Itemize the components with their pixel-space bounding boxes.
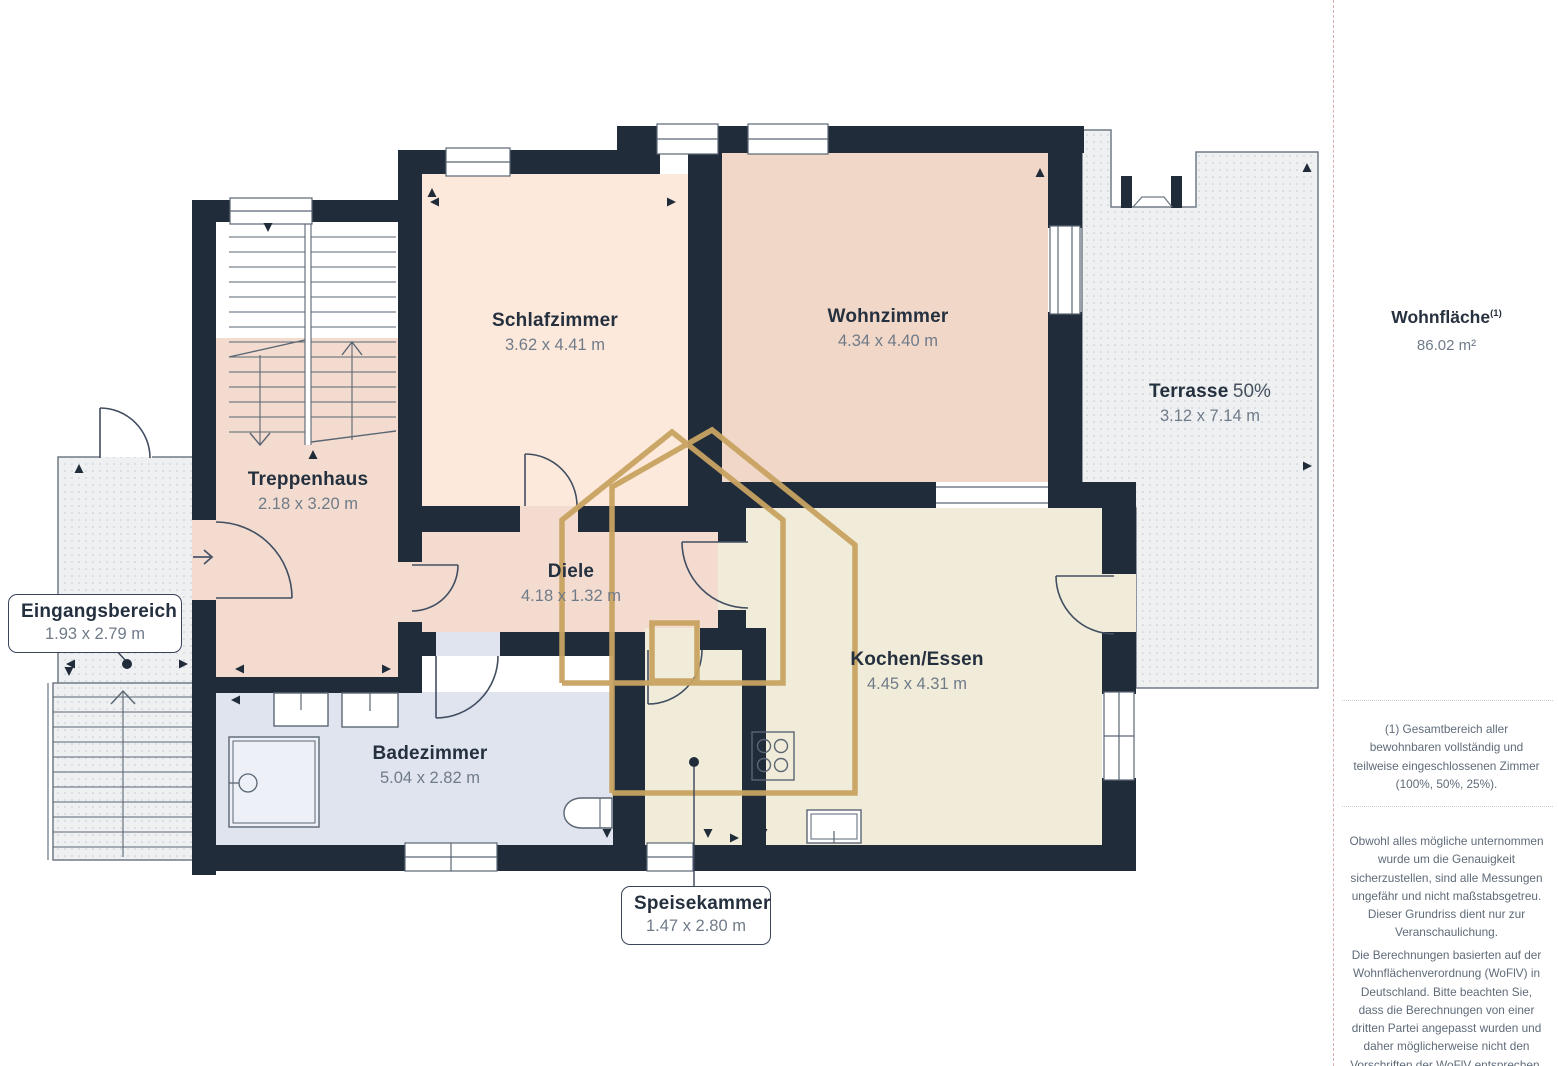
shower [229,737,319,827]
wall-segment [192,200,216,520]
wall-segment [1048,312,1082,484]
wall-segment [1102,508,1136,574]
wall-segment [1048,126,1082,228]
window [647,843,693,871]
terrace-post [1121,176,1132,208]
bathroom-sink [274,693,328,726]
window [657,124,718,154]
room-label-wohnzimmer: Wohnzimmer 4.34 x 4.40 m [828,306,949,351]
wall-segment [422,632,436,656]
callout-anchor-dot [689,757,699,767]
disclaimer-wofiv: Die Berechnungen basierten auf der Wohnf… [1348,946,1546,1066]
window [446,148,510,176]
room-name: Speisekammer [634,893,758,915]
wall-segment [398,150,422,562]
room-dimensions: 1.47 x 2.80 m [634,917,758,936]
terrace-post [1171,176,1182,208]
room-dimensions: 3.12 x 7.14 m [1149,407,1271,426]
area-footnote: (1) Gesamtbereich aller bewohnbaren voll… [1348,720,1546,793]
living-area-value: 86.02 m² [1391,337,1501,354]
kitchen-sink [807,810,861,843]
window [1104,692,1134,780]
living-area-title: Wohnfläche(1) [1391,307,1501,328]
room-name: Diele [521,561,621,583]
wall-segment [613,632,645,845]
room-dimensions: 4.18 x 1.32 m [521,587,621,606]
room-name: Treppenhaus [248,469,368,491]
disclaimer-accuracy: Obwohl alles mögliche unternommen wurde … [1348,832,1546,942]
living-area-block: Wohnfläche(1) 86.02 m² [1391,307,1501,354]
window [405,843,497,871]
room-name: Eingangsbereich [21,601,169,623]
wall-segment [422,506,520,532]
room-label-schlafzimmer: Schlafzimmer 3.62 x 4.41 m [492,310,618,355]
room-dimensions: 4.34 x 4.40 m [828,332,949,351]
kueche-terrasse-opening [1102,574,1136,632]
room-name: Terrasse [1149,381,1228,402]
door-building-entry [100,408,150,458]
room-dimensions: 4.45 x 4.31 m [850,675,983,694]
wall-segment [688,153,722,506]
sidebar-divider [1342,806,1553,807]
wall-segment [398,150,660,174]
callout-speisekammer: Speisekammer 1.47 x 2.80 m [621,886,771,945]
room-label-badezimmer: Badezimmer 5.04 x 2.82 m [373,743,488,788]
badezimmer-door-opening [436,632,500,656]
diele-kueche-opening [718,542,744,610]
footnote-marker: (1) [1490,308,1502,319]
wall-segment [718,508,746,542]
wall-segment [192,845,405,871]
room-label-treppenhaus: Treppenhaus 2.18 x 3.20 m [248,469,368,514]
room-dimensions: 2.18 x 3.20 m [248,495,368,514]
wall-segment [1102,778,1136,848]
wall-segment [578,506,722,532]
apartment-door-opening [192,520,216,600]
room-name: Kochen/Essen [850,649,983,671]
floorplan-page: Schlafzimmer 3.62 x 4.41 m Wohnzimmer 4.… [0,0,1558,1066]
terrace-window-door [1050,226,1080,314]
room-name: Schlafzimmer [492,310,618,332]
room-label-terrasse: Terrasse 50% 3.12 x 7.14 m [1149,381,1271,426]
room-label-kochen-essen: Kochen/Essen 4.45 x 4.31 m [850,649,983,694]
room-dimensions: 1.93 x 2.79 m [21,625,169,644]
treppenhaus-diele-opening [398,562,422,622]
room-name: Wohnzimmer [828,306,949,328]
bathroom-sink [342,693,398,727]
info-sidebar: Wohnfläche(1) 86.02 m² (1) Gesamtbereich… [1333,0,1558,1066]
window [230,198,312,224]
toilet [564,798,612,828]
terrace-step [1133,197,1172,207]
entry-area [48,457,193,860]
sidebar-divider [1342,700,1553,701]
wall-segment [1048,482,1136,508]
schlafzimmer-door-opening [520,506,578,532]
room-dimensions: 3.62 x 4.41 m [492,336,618,355]
wall-segment [700,628,742,650]
room-share: 50% [1233,381,1271,402]
wall-segment [497,845,647,871]
callout-eingangsbereich: Eingangsbereich 1.93 x 2.79 m [8,594,182,653]
open-passage [936,484,1048,506]
window [748,124,828,154]
room-label-diele: Diele 4.18 x 1.32 m [521,561,621,606]
room-dimensions: 5.04 x 2.82 m [373,769,488,788]
wall-segment [742,628,766,845]
wall-segment [192,600,216,875]
wall-segment [1102,632,1136,694]
callout-anchor-dot [122,659,132,669]
room-name: Badezimmer [373,743,488,765]
wall-segment [693,845,1136,871]
